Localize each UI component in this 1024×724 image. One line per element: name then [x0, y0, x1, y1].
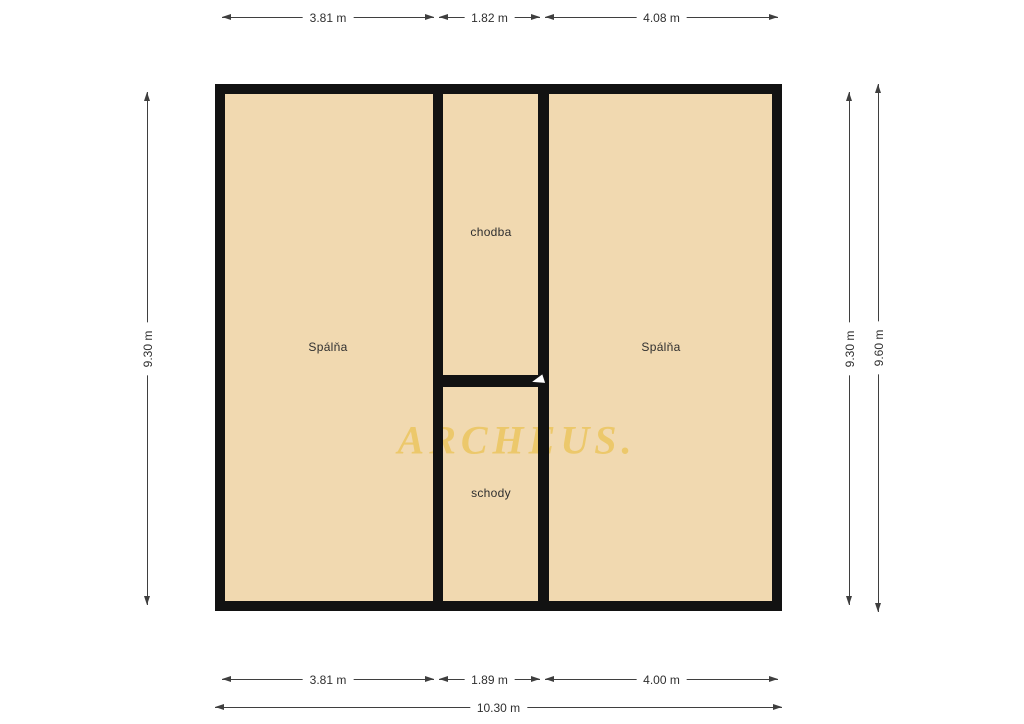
room-label-right-bedroom: Spálňa — [641, 340, 680, 354]
room-label-corridor: chodba — [470, 225, 511, 239]
dimension-bottom-left-room: 3.81 m — [222, 679, 434, 680]
dimension-label: 9.30 m — [843, 322, 857, 375]
dimension-label: 9.30 m — [141, 322, 155, 375]
dimension-top-left-room: 3.81 m — [222, 17, 434, 18]
dimension-label: 3.81 m — [303, 11, 354, 25]
room-label-stairs: schody — [471, 486, 511, 500]
dimension-label: 1.89 m — [464, 673, 515, 687]
corridor-left-wall — [433, 94, 443, 601]
dimension-label: 1.82 m — [464, 11, 515, 25]
dimension-label: 4.08 m — [636, 11, 687, 25]
dimension-left-height: 9.30 m — [147, 92, 148, 605]
dimension-right-inner-height: 9.30 m — [849, 92, 850, 605]
dimension-label: 4.00 m — [636, 673, 687, 687]
building-plan: ARCHEUS. Spálňa chodba Spálňa schody — [215, 84, 782, 611]
corridor-right-wall — [538, 94, 549, 601]
dimension-label: 9.60 m — [872, 322, 886, 375]
dimension-top-right-room: 4.08 m — [545, 17, 778, 18]
dimension-bottom-corridor: 1.89 m — [439, 679, 540, 680]
dimension-label: 3.81 m — [303, 673, 354, 687]
dimension-bottom-right-room: 4.00 m — [545, 679, 778, 680]
dimension-bottom-total-width: 10.30 m — [215, 707, 782, 708]
dimension-label: 10.30 m — [470, 701, 527, 715]
dimension-top-corridor: 1.82 m — [439, 17, 540, 18]
room-label-left-bedroom: Spálňa — [308, 340, 347, 354]
floor-plan-canvas: ARCHEUS. Spálňa chodba Spálňa schody 3.8… — [0, 0, 1024, 724]
outer-wall — [215, 84, 782, 611]
dimension-right-outer-height: 9.60 m — [878, 84, 879, 612]
